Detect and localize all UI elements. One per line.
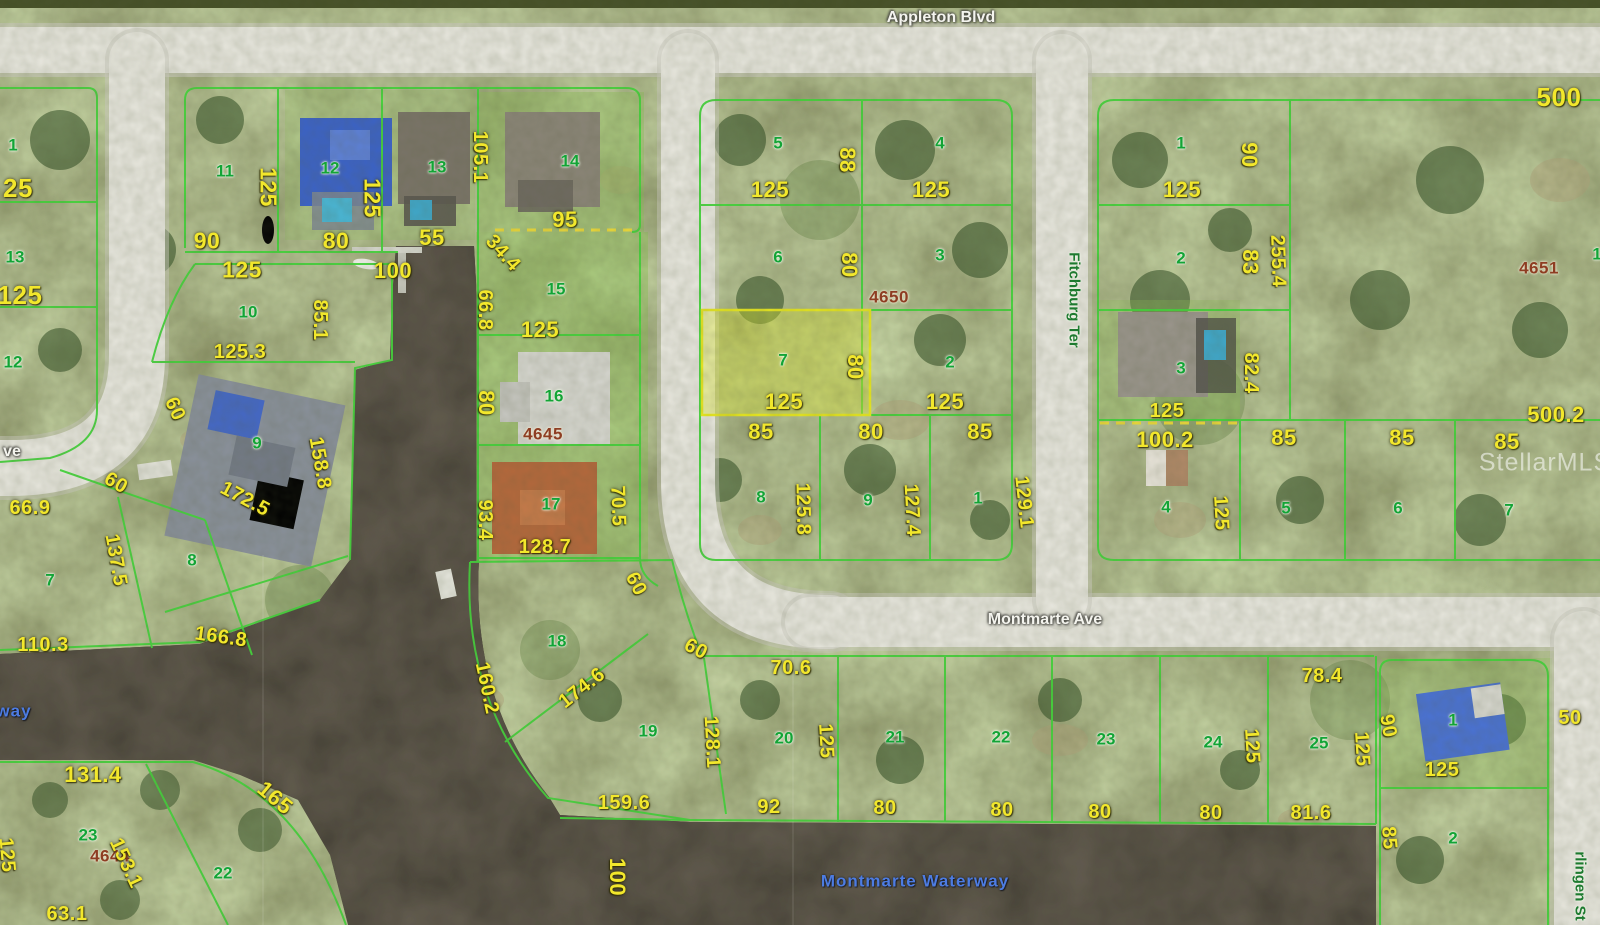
dimension-label: 100 bbox=[374, 260, 412, 282]
lot-number: 2 bbox=[945, 354, 954, 371]
dimension-label: 105.1 bbox=[470, 131, 490, 184]
dimension-label: 500.2 bbox=[1527, 404, 1585, 426]
lot-number: 23 bbox=[79, 827, 98, 844]
dimension-label: 80 bbox=[323, 230, 350, 253]
block-number: 4645 bbox=[523, 426, 563, 443]
lot-number: 25 bbox=[1310, 735, 1329, 752]
dimension-label: 174.6 bbox=[555, 664, 609, 712]
dimension-label: 34.4 bbox=[482, 231, 524, 275]
dimension-label: 78.4 bbox=[1302, 666, 1343, 686]
stellar-mls-watermark: StellarMLS bbox=[1479, 451, 1600, 476]
street-label-montmarte-ave: Montmarte Ave bbox=[988, 612, 1102, 628]
block-number: 4651 bbox=[1519, 260, 1559, 277]
dimension-label: 125 bbox=[815, 723, 837, 759]
lot-number: 4 bbox=[1161, 499, 1170, 516]
lot-number: 22 bbox=[214, 865, 233, 882]
dimension-label: 125 bbox=[1351, 731, 1373, 767]
dimension-label: 125.3 bbox=[214, 342, 267, 362]
dimension-label: 70.5 bbox=[607, 485, 628, 527]
lot-number: 4 bbox=[935, 135, 944, 152]
dimension-label: 125 bbox=[765, 391, 803, 413]
dimension-label: 60 bbox=[101, 469, 131, 498]
dimension-label: 95 bbox=[552, 209, 577, 231]
dimension-label: 166.8 bbox=[194, 623, 249, 650]
dimension-label: 70.6 bbox=[771, 658, 812, 678]
lot-number: 22 bbox=[992, 729, 1011, 746]
dimension-label: 83 bbox=[1239, 249, 1261, 274]
lot-number: 12 bbox=[321, 160, 340, 177]
lot-number: 16 bbox=[545, 388, 564, 405]
dimension-label: 125 bbox=[361, 178, 384, 218]
dimension-label: 55 bbox=[419, 227, 444, 249]
dimension-label: 125 bbox=[0, 837, 18, 873]
lot-number: 6 bbox=[1393, 500, 1402, 517]
lot-number: 13 bbox=[6, 249, 25, 266]
lot-number: 7 bbox=[1504, 502, 1513, 519]
dimension-label: 125 bbox=[1425, 760, 1460, 780]
dimension-label: 85.1 bbox=[310, 300, 330, 341]
dimension-label: 100.2 bbox=[1136, 429, 1194, 451]
dimension-label: 60 bbox=[161, 394, 189, 424]
waterway-label: Montmarte Waterway bbox=[821, 873, 1009, 890]
dimension-label: 80 bbox=[844, 354, 866, 379]
dimension-label: 125 bbox=[257, 167, 280, 207]
dimension-label: 85 bbox=[967, 421, 992, 443]
dimension-label: 125 bbox=[1163, 179, 1201, 201]
lot-number: 9 bbox=[252, 435, 261, 452]
lot-number: 1 bbox=[8, 137, 17, 154]
dimension-label: 80 bbox=[873, 798, 896, 818]
dimension-label: 93.4 bbox=[475, 500, 495, 541]
dimension-label: 172.5 bbox=[217, 478, 273, 520]
lot-number: 1 bbox=[1592, 246, 1600, 263]
dimension-label: 80 bbox=[838, 252, 860, 277]
lot-number: 9 bbox=[863, 492, 872, 509]
lot-number: 1 bbox=[1448, 712, 1457, 729]
lot-number: 10 bbox=[239, 304, 258, 321]
lot-number: 3 bbox=[935, 247, 944, 264]
dimension-label: 66.9 bbox=[10, 498, 51, 518]
lot-number: 8 bbox=[187, 552, 196, 569]
dimension-label: 125 bbox=[1210, 495, 1232, 531]
dimension-label: 165 bbox=[253, 777, 296, 818]
lot-number: 19 bbox=[639, 723, 658, 740]
dimension-label: 125 bbox=[926, 391, 964, 413]
dimension-label: 63.1 bbox=[47, 904, 88, 924]
lot-number: 2 bbox=[1176, 250, 1185, 267]
dimension-label: 129.1 bbox=[1011, 475, 1036, 529]
dimension-label: 125 bbox=[751, 179, 789, 201]
dimension-label: 66.8 bbox=[475, 290, 495, 331]
dimension-label: 50 bbox=[1558, 708, 1581, 728]
lot-number: 7 bbox=[778, 352, 787, 369]
dimension-label: 81.6 bbox=[1291, 803, 1332, 823]
dimension-label: 110.3 bbox=[17, 635, 68, 655]
lot-number: 5 bbox=[773, 135, 782, 152]
dimension-label: 85 bbox=[1494, 431, 1519, 453]
dimension-label: 158.8 bbox=[306, 435, 335, 490]
dimension-label: 125.8 bbox=[793, 483, 814, 536]
lot-number: 11 bbox=[216, 163, 234, 180]
lot-number: 21 bbox=[886, 729, 905, 746]
dimension-label: 85 bbox=[1378, 826, 1400, 851]
street-label-fitchburg-ter: Fitchburg Ter bbox=[1067, 252, 1082, 348]
dimension-label: 125 bbox=[912, 179, 950, 201]
dimension-label: 80 bbox=[475, 390, 497, 415]
lot-number: 5 bbox=[1281, 500, 1290, 517]
dimension-label: 82.4 bbox=[1241, 353, 1261, 394]
lot-number: 1 bbox=[1176, 135, 1185, 152]
lot-number: 3 bbox=[1176, 360, 1185, 377]
dimension-label: 80 bbox=[1199, 803, 1222, 823]
lot-number: 23 bbox=[1097, 731, 1116, 748]
dimension-label: 80 bbox=[1088, 802, 1111, 822]
lot-number: 14 bbox=[561, 153, 580, 170]
street-label-partial-ave: ve bbox=[3, 444, 21, 460]
lot-number: 18 bbox=[548, 633, 567, 650]
lot-number: 6 bbox=[773, 249, 782, 266]
lot-number: 20 bbox=[775, 730, 794, 747]
dimension-label: 85 bbox=[1389, 427, 1414, 449]
waterway-label-partial: way bbox=[0, 703, 32, 720]
dimension-label: 125 bbox=[1150, 401, 1185, 421]
dimension-label: 100 bbox=[606, 858, 628, 896]
dimension-label: 160.2 bbox=[472, 660, 502, 716]
dimension-label: 25 bbox=[3, 175, 33, 201]
label-layer: Appleton BlvdMontmarte AveveFitchburg Te… bbox=[0, 0, 1600, 925]
dimension-label: 125 bbox=[222, 259, 262, 282]
dimension-label: 125 bbox=[521, 319, 559, 341]
lot-number: 13 bbox=[428, 159, 447, 176]
dimension-label: 137.5 bbox=[102, 532, 131, 587]
lot-number: 7 bbox=[45, 572, 54, 589]
lot-number: 1 bbox=[973, 490, 982, 507]
street-label-appleton-blvd: Appleton Blvd bbox=[887, 10, 995, 26]
dimension-label: 85 bbox=[1271, 427, 1296, 449]
lot-number: 8 bbox=[756, 489, 765, 506]
dimension-label: 128.1 bbox=[701, 715, 724, 769]
dimension-label: 60 bbox=[681, 635, 711, 664]
lot-number: 17 bbox=[542, 496, 561, 513]
dimension-label: 500 bbox=[1537, 84, 1582, 110]
dimension-label: 88 bbox=[836, 147, 858, 172]
dimension-label: 90 bbox=[1238, 142, 1260, 167]
dimension-label: 90 bbox=[1376, 713, 1400, 739]
dimension-label: 92 bbox=[757, 797, 780, 817]
dimension-label: 85 bbox=[748, 421, 773, 443]
dimension-label: 127.4 bbox=[901, 483, 924, 537]
dimension-label: 80 bbox=[858, 421, 883, 443]
dimension-label: 255.4 bbox=[1267, 234, 1289, 287]
dimension-label: 60 bbox=[622, 569, 651, 599]
lot-number: 15 bbox=[547, 281, 566, 298]
dimension-label: 131.4 bbox=[64, 764, 122, 786]
dimension-label: 125 bbox=[1241, 728, 1263, 764]
dimension-label: 125 bbox=[0, 282, 42, 308]
dimension-label: 80 bbox=[990, 800, 1013, 820]
dimension-label: 90 bbox=[194, 230, 221, 253]
lot-number: 12 bbox=[4, 354, 23, 371]
lot-number: 2 bbox=[1448, 830, 1457, 847]
lot-number: 24 bbox=[1204, 734, 1223, 751]
street-label-harlingen-st: rlingen St bbox=[1573, 851, 1588, 920]
block-number: 4650 bbox=[869, 289, 909, 306]
dimension-label: 128.7 bbox=[519, 537, 572, 557]
aerial-parcel-map: Appleton BlvdMontmarte AveveFitchburg Te… bbox=[0, 0, 1600, 925]
dimension-label: 159.6 bbox=[598, 793, 651, 813]
